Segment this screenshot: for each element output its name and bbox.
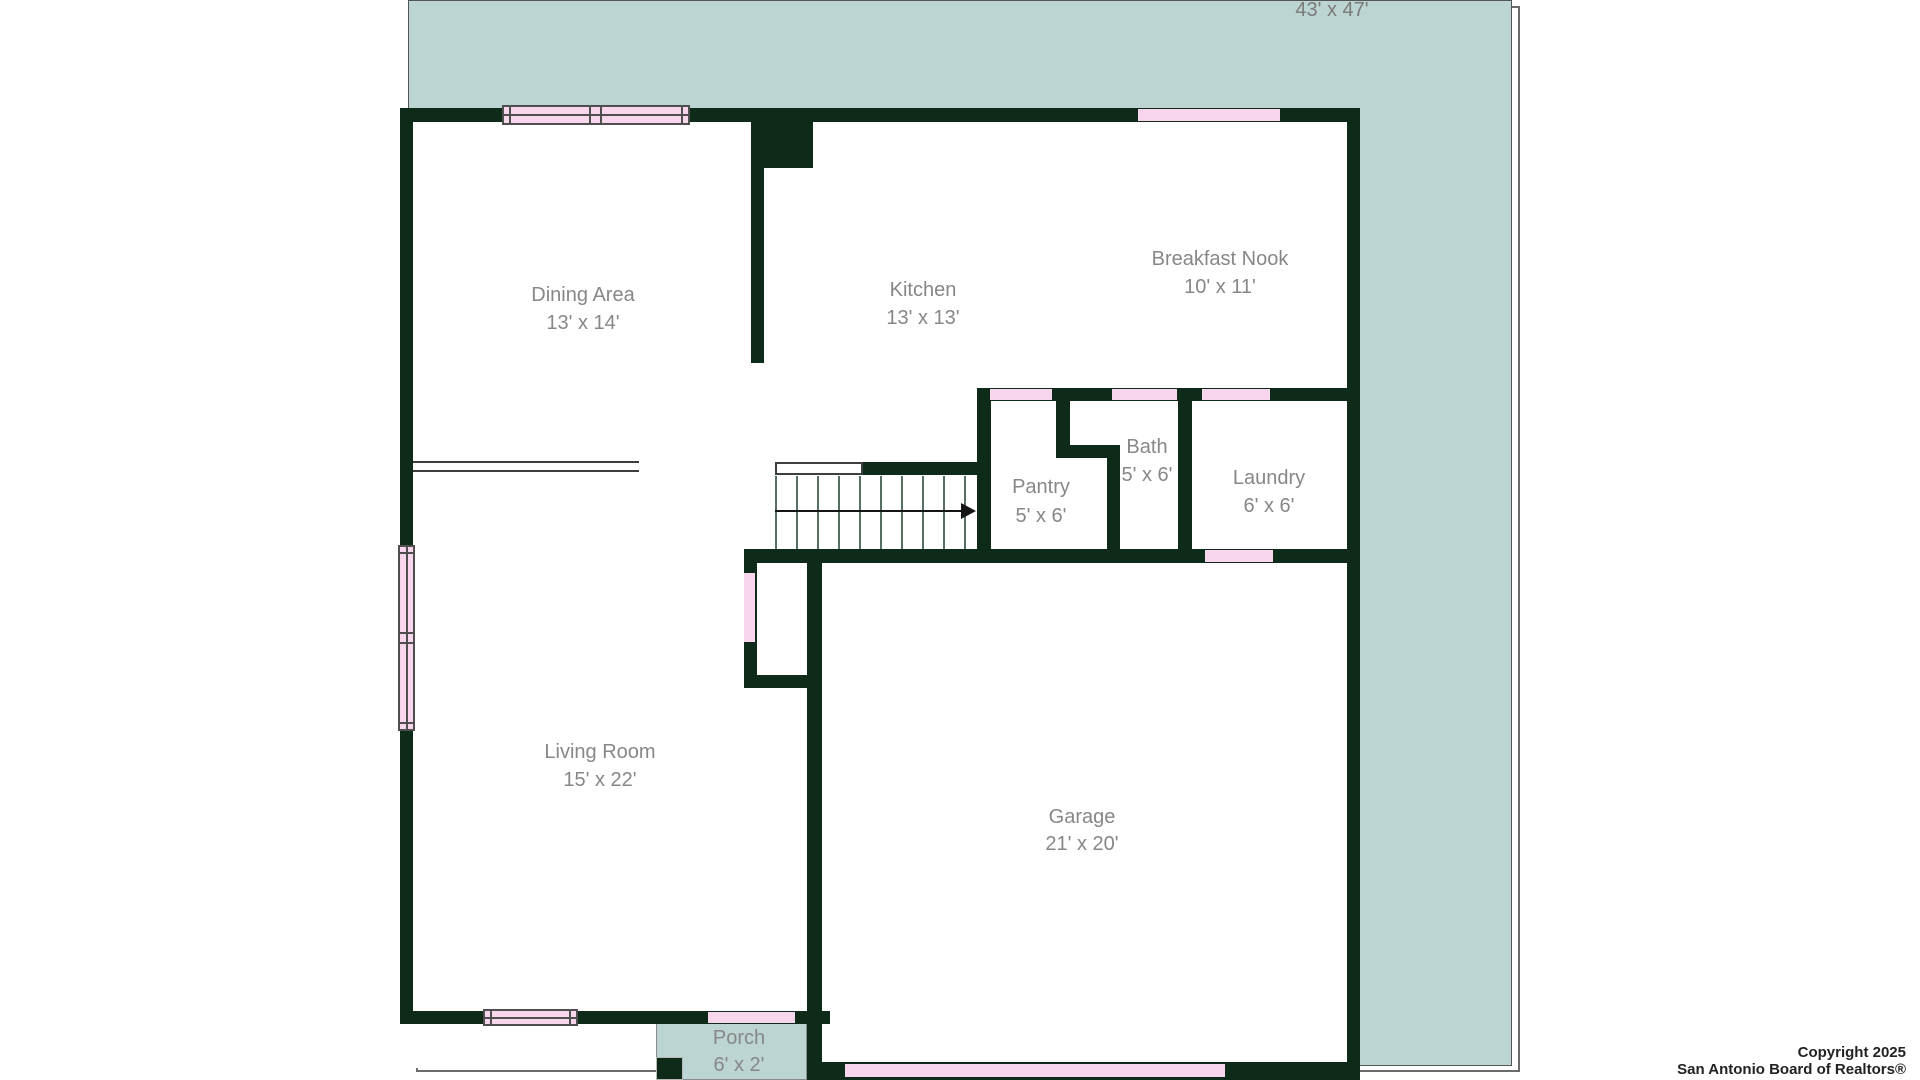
living-bottom-window xyxy=(483,1009,578,1026)
window-end-line xyxy=(509,107,511,123)
laundry-door xyxy=(1202,389,1270,400)
window-mullion xyxy=(400,632,413,634)
room-label-laundry-name: Laundry xyxy=(1233,467,1305,489)
stair-tread-line xyxy=(901,476,903,549)
room-label-bath-dims: 5' x 6' xyxy=(1122,464,1173,486)
window-end-line xyxy=(400,552,413,554)
wall-kitchen-divider xyxy=(751,122,764,363)
window-mullion xyxy=(589,107,591,123)
wall-stairs-top xyxy=(862,462,978,475)
room-label-living-dims: 15' x 22' xyxy=(563,769,636,791)
stair-tread-line xyxy=(943,476,945,549)
room-label-breakfast-dims: 10' x 11' xyxy=(1184,276,1256,298)
porch-entry-door xyxy=(708,1012,795,1023)
room-label-porch-dims: 6' x 2' xyxy=(714,1054,765,1076)
room-label-dining-dims: 13' x 14' xyxy=(546,312,619,334)
room-label-garage-name: Garage xyxy=(1049,806,1116,828)
laundry-garage-door xyxy=(1205,550,1273,562)
copyright-line1: Copyright 2025 xyxy=(1677,1044,1906,1061)
room-label-pantry-name: Pantry xyxy=(1012,476,1070,498)
window-sash-line xyxy=(504,114,688,116)
wall-pantry-left xyxy=(977,388,991,563)
breakfast-nook-window xyxy=(1138,109,1280,121)
closet-door xyxy=(744,573,755,642)
window-sash-line xyxy=(406,547,408,729)
stairs-direction-line xyxy=(775,510,965,512)
wall-garage-left xyxy=(807,549,822,1080)
room-label-bath-name: Bath xyxy=(1126,436,1167,458)
stair-tread-line xyxy=(817,476,819,549)
window-end-line xyxy=(490,1011,492,1024)
porch-post xyxy=(656,1057,683,1080)
railing xyxy=(413,461,639,472)
copyright-notice: Copyright 2025 San Antonio Board of Real… xyxy=(1677,1044,1906,1078)
stairs-direction-arrow-icon xyxy=(961,503,976,519)
floor-plan: 43' x 47' Dining Area 13' x 14' Kitchen … xyxy=(0,0,1920,1080)
room-label-garage-dims: 21' x 20' xyxy=(1045,833,1118,855)
bath-door xyxy=(1112,389,1177,400)
room-label-living-name: Living Room xyxy=(544,741,655,763)
room-label-kitchen-dims: 13' x 13' xyxy=(886,307,959,329)
room-label-laundry-dims: 6' x 6' xyxy=(1244,495,1295,517)
window-end-line xyxy=(400,722,413,724)
wall-right xyxy=(1347,108,1360,1080)
window-sash-line xyxy=(485,1017,576,1019)
stair-tread-line xyxy=(796,476,798,549)
lot-dimensions-label: 43' x 47' xyxy=(1295,0,1368,21)
window-end-line xyxy=(681,107,683,123)
copyright-line2: San Antonio Board of Realtors® xyxy=(1677,1061,1906,1078)
stair-tread-line xyxy=(838,476,840,549)
stairs xyxy=(775,476,977,549)
wall-bath-laundry xyxy=(1178,388,1192,563)
room-label-porch-name: Porch xyxy=(713,1027,765,1049)
room-label-dining-name: Dining Area xyxy=(531,284,634,306)
room-label-kitchen-name: Kitchen xyxy=(890,279,957,301)
stair-tread-line xyxy=(859,476,861,549)
stairs-railing-bar xyxy=(775,462,863,475)
wall-pantry-bath-lower xyxy=(1107,445,1120,563)
pantry-door xyxy=(990,389,1052,400)
window-mullion xyxy=(400,642,413,644)
wall-closet-bottom xyxy=(749,675,809,688)
room-label-breakfast-name: Breakfast Nook xyxy=(1152,248,1289,270)
stair-tread-line xyxy=(775,476,777,549)
stair-tread-line xyxy=(922,476,924,549)
living-left-window xyxy=(398,545,415,731)
garage-door xyxy=(845,1064,1225,1077)
window-mullion xyxy=(600,107,602,123)
room-label-pantry-dims: 5' x 6' xyxy=(1016,505,1067,527)
stair-tread-line xyxy=(880,476,882,549)
window-end-line xyxy=(569,1011,571,1024)
dining-window xyxy=(502,105,690,125)
